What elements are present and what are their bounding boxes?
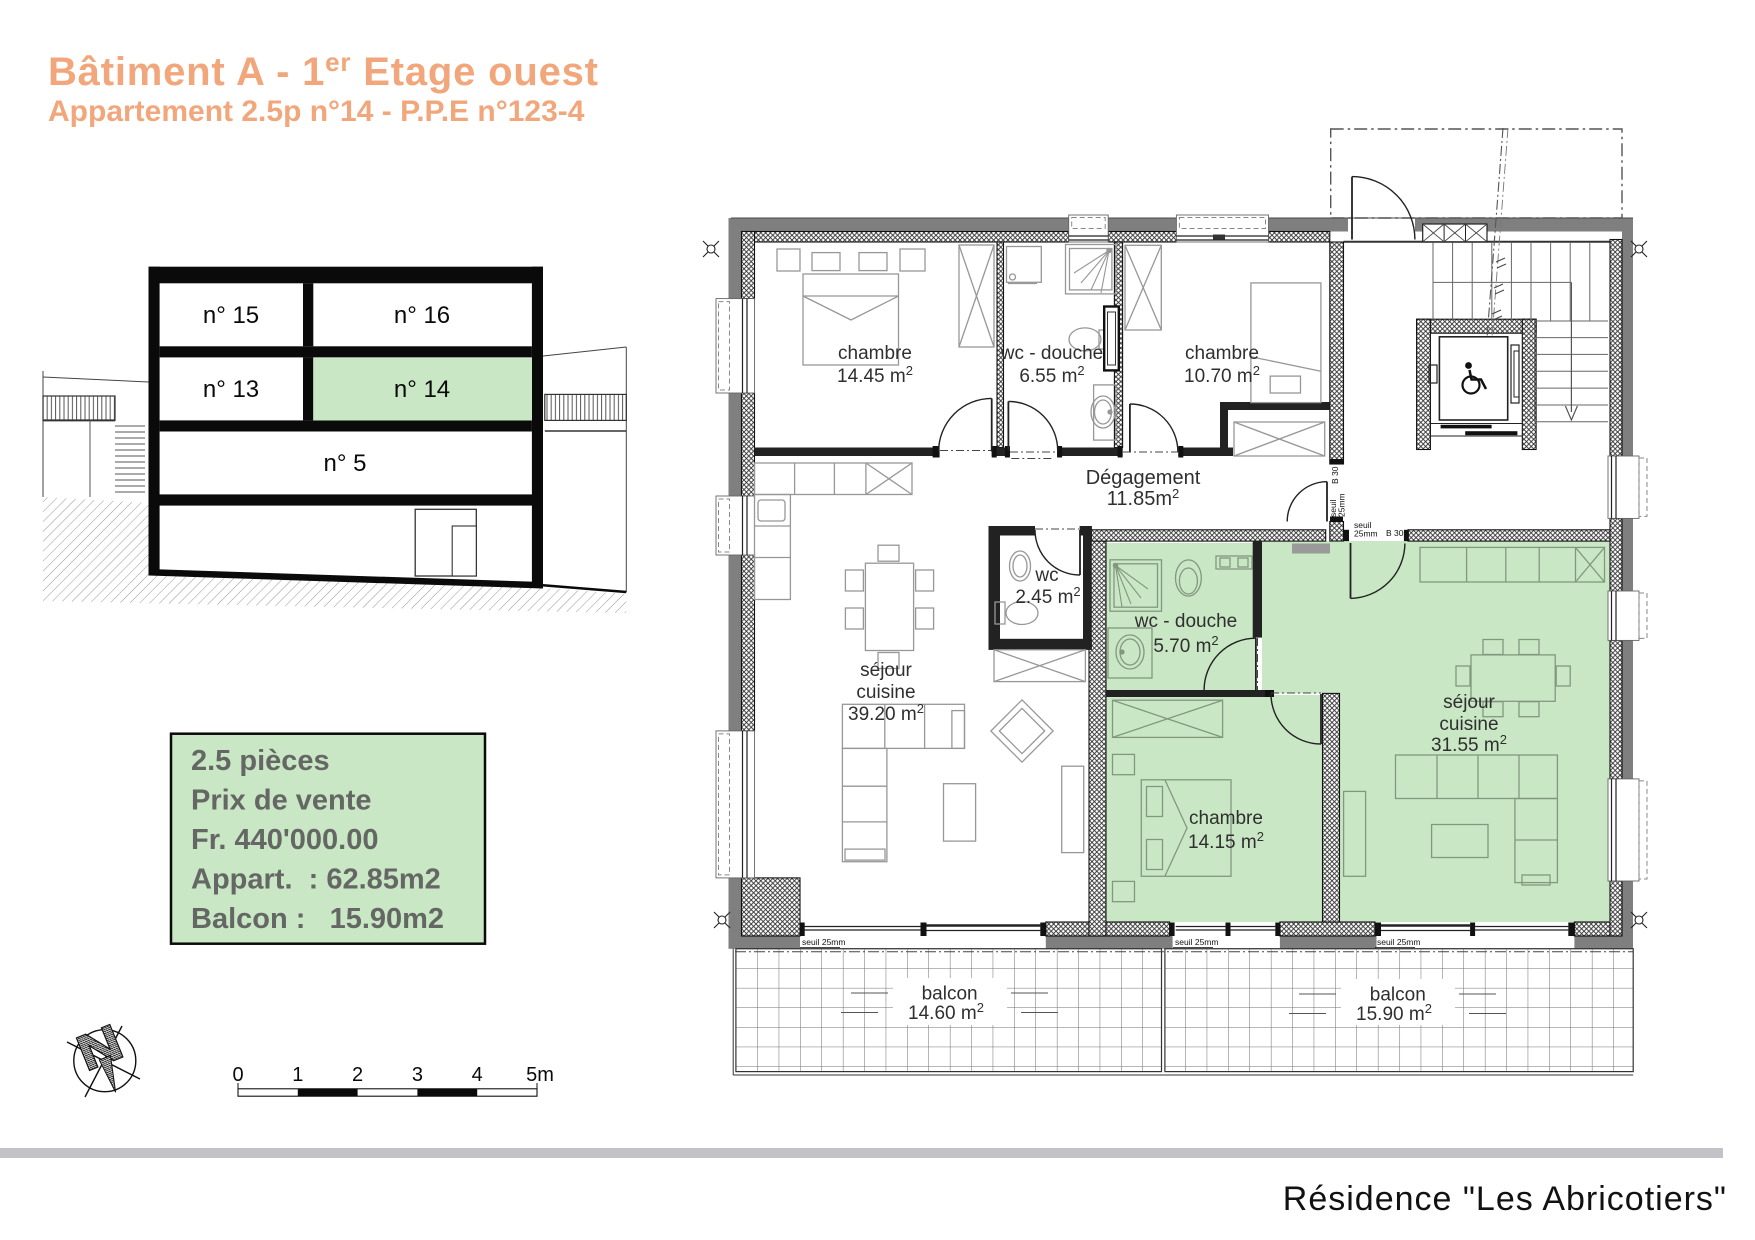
svg-text:n° 16: n° 16 — [394, 302, 450, 329]
svg-text:balcon: balcon — [1370, 985, 1426, 1006]
svg-text:n° 5: n° 5 — [324, 450, 367, 477]
svg-text:B 30: B 30 — [1330, 466, 1340, 484]
svg-text:Dégagement: Dégagement — [1086, 467, 1201, 489]
svg-text:14.60 m2: 14.60 m2 — [908, 1000, 984, 1024]
svg-text:Résidence "Les Abricotiers": Résidence "Les Abricotiers" — [1283, 1180, 1727, 1218]
svg-text:wc: wc — [1034, 565, 1058, 586]
svg-text:5.70 m2: 5.70 m2 — [1153, 633, 1218, 657]
svg-text:0: 0 — [232, 1064, 243, 1086]
svg-text:6.55 m2: 6.55 m2 — [1019, 363, 1084, 387]
svg-text:n° 13: n° 13 — [203, 376, 259, 403]
svg-text:31.55 m2: 31.55 m2 — [1431, 732, 1507, 756]
svg-text:2.5 pièces: 2.5 pièces — [191, 745, 330, 777]
svg-text:n° 14: n° 14 — [394, 376, 450, 403]
svg-text:10.70 m2: 10.70 m2 — [1184, 363, 1260, 387]
svg-text:wc - douche: wc - douche — [1134, 611, 1237, 632]
svg-text:cuisine: cuisine — [1439, 714, 1498, 735]
svg-text:chambre: chambre — [1185, 343, 1259, 364]
svg-text:4: 4 — [472, 1064, 483, 1086]
svg-text:15.90 m2: 15.90 m2 — [1356, 1001, 1432, 1025]
svg-text:25mm: 25mm — [1354, 529, 1378, 539]
svg-text:Appartement 2.5p n°14 - P.P.E: Appartement 2.5p n°14 - P.P.E n°123-4 — [48, 95, 585, 128]
svg-text:Balcon : 15.90m2: Balcon : 15.90m2 — [191, 903, 444, 935]
svg-text:2: 2 — [352, 1064, 363, 1086]
svg-text:n° 15: n° 15 — [203, 302, 259, 329]
svg-text:séjour: séjour — [1443, 692, 1495, 713]
svg-text:séjour: séjour — [860, 660, 912, 681]
svg-text:B 30: B 30 — [1386, 528, 1404, 538]
svg-text:Bâtiment A - 1er Etage ouest: Bâtiment A - 1er Etage ouest — [48, 47, 599, 94]
svg-text:cuisine: cuisine — [856, 682, 915, 703]
svg-text:3: 3 — [412, 1064, 423, 1086]
svg-text:wc - douche: wc - douche — [1000, 343, 1103, 364]
svg-text:14.45 m2: 14.45 m2 — [837, 363, 913, 387]
svg-text:chambre: chambre — [1189, 808, 1263, 829]
svg-text:Appart. : 62.85m2: Appart. : 62.85m2 — [191, 864, 441, 896]
svg-text:14.15 m2: 14.15 m2 — [1188, 829, 1264, 853]
svg-text:chambre: chambre — [838, 343, 912, 364]
svg-text:Fr. 440'000.00: Fr. 440'000.00 — [191, 824, 379, 856]
svg-text:39.20 m2: 39.20 m2 — [848, 701, 924, 725]
svg-text:2.45 m2: 2.45 m2 — [1015, 584, 1080, 608]
svg-text:balcon: balcon — [922, 984, 978, 1005]
svg-text:1: 1 — [292, 1064, 303, 1086]
svg-text:Prix de vente: Prix de vente — [191, 785, 372, 817]
svg-text:seuil 25mm: seuil 25mm — [802, 937, 845, 947]
svg-text:11.85m2: 11.85m2 — [1107, 486, 1179, 510]
svg-text:seuil 25mm: seuil 25mm — [1377, 937, 1420, 947]
svg-text:seuil 25mm: seuil 25mm — [1175, 937, 1218, 947]
svg-text:25mm: 25mm — [1337, 493, 1347, 517]
svg-text:5m: 5m — [526, 1064, 554, 1086]
